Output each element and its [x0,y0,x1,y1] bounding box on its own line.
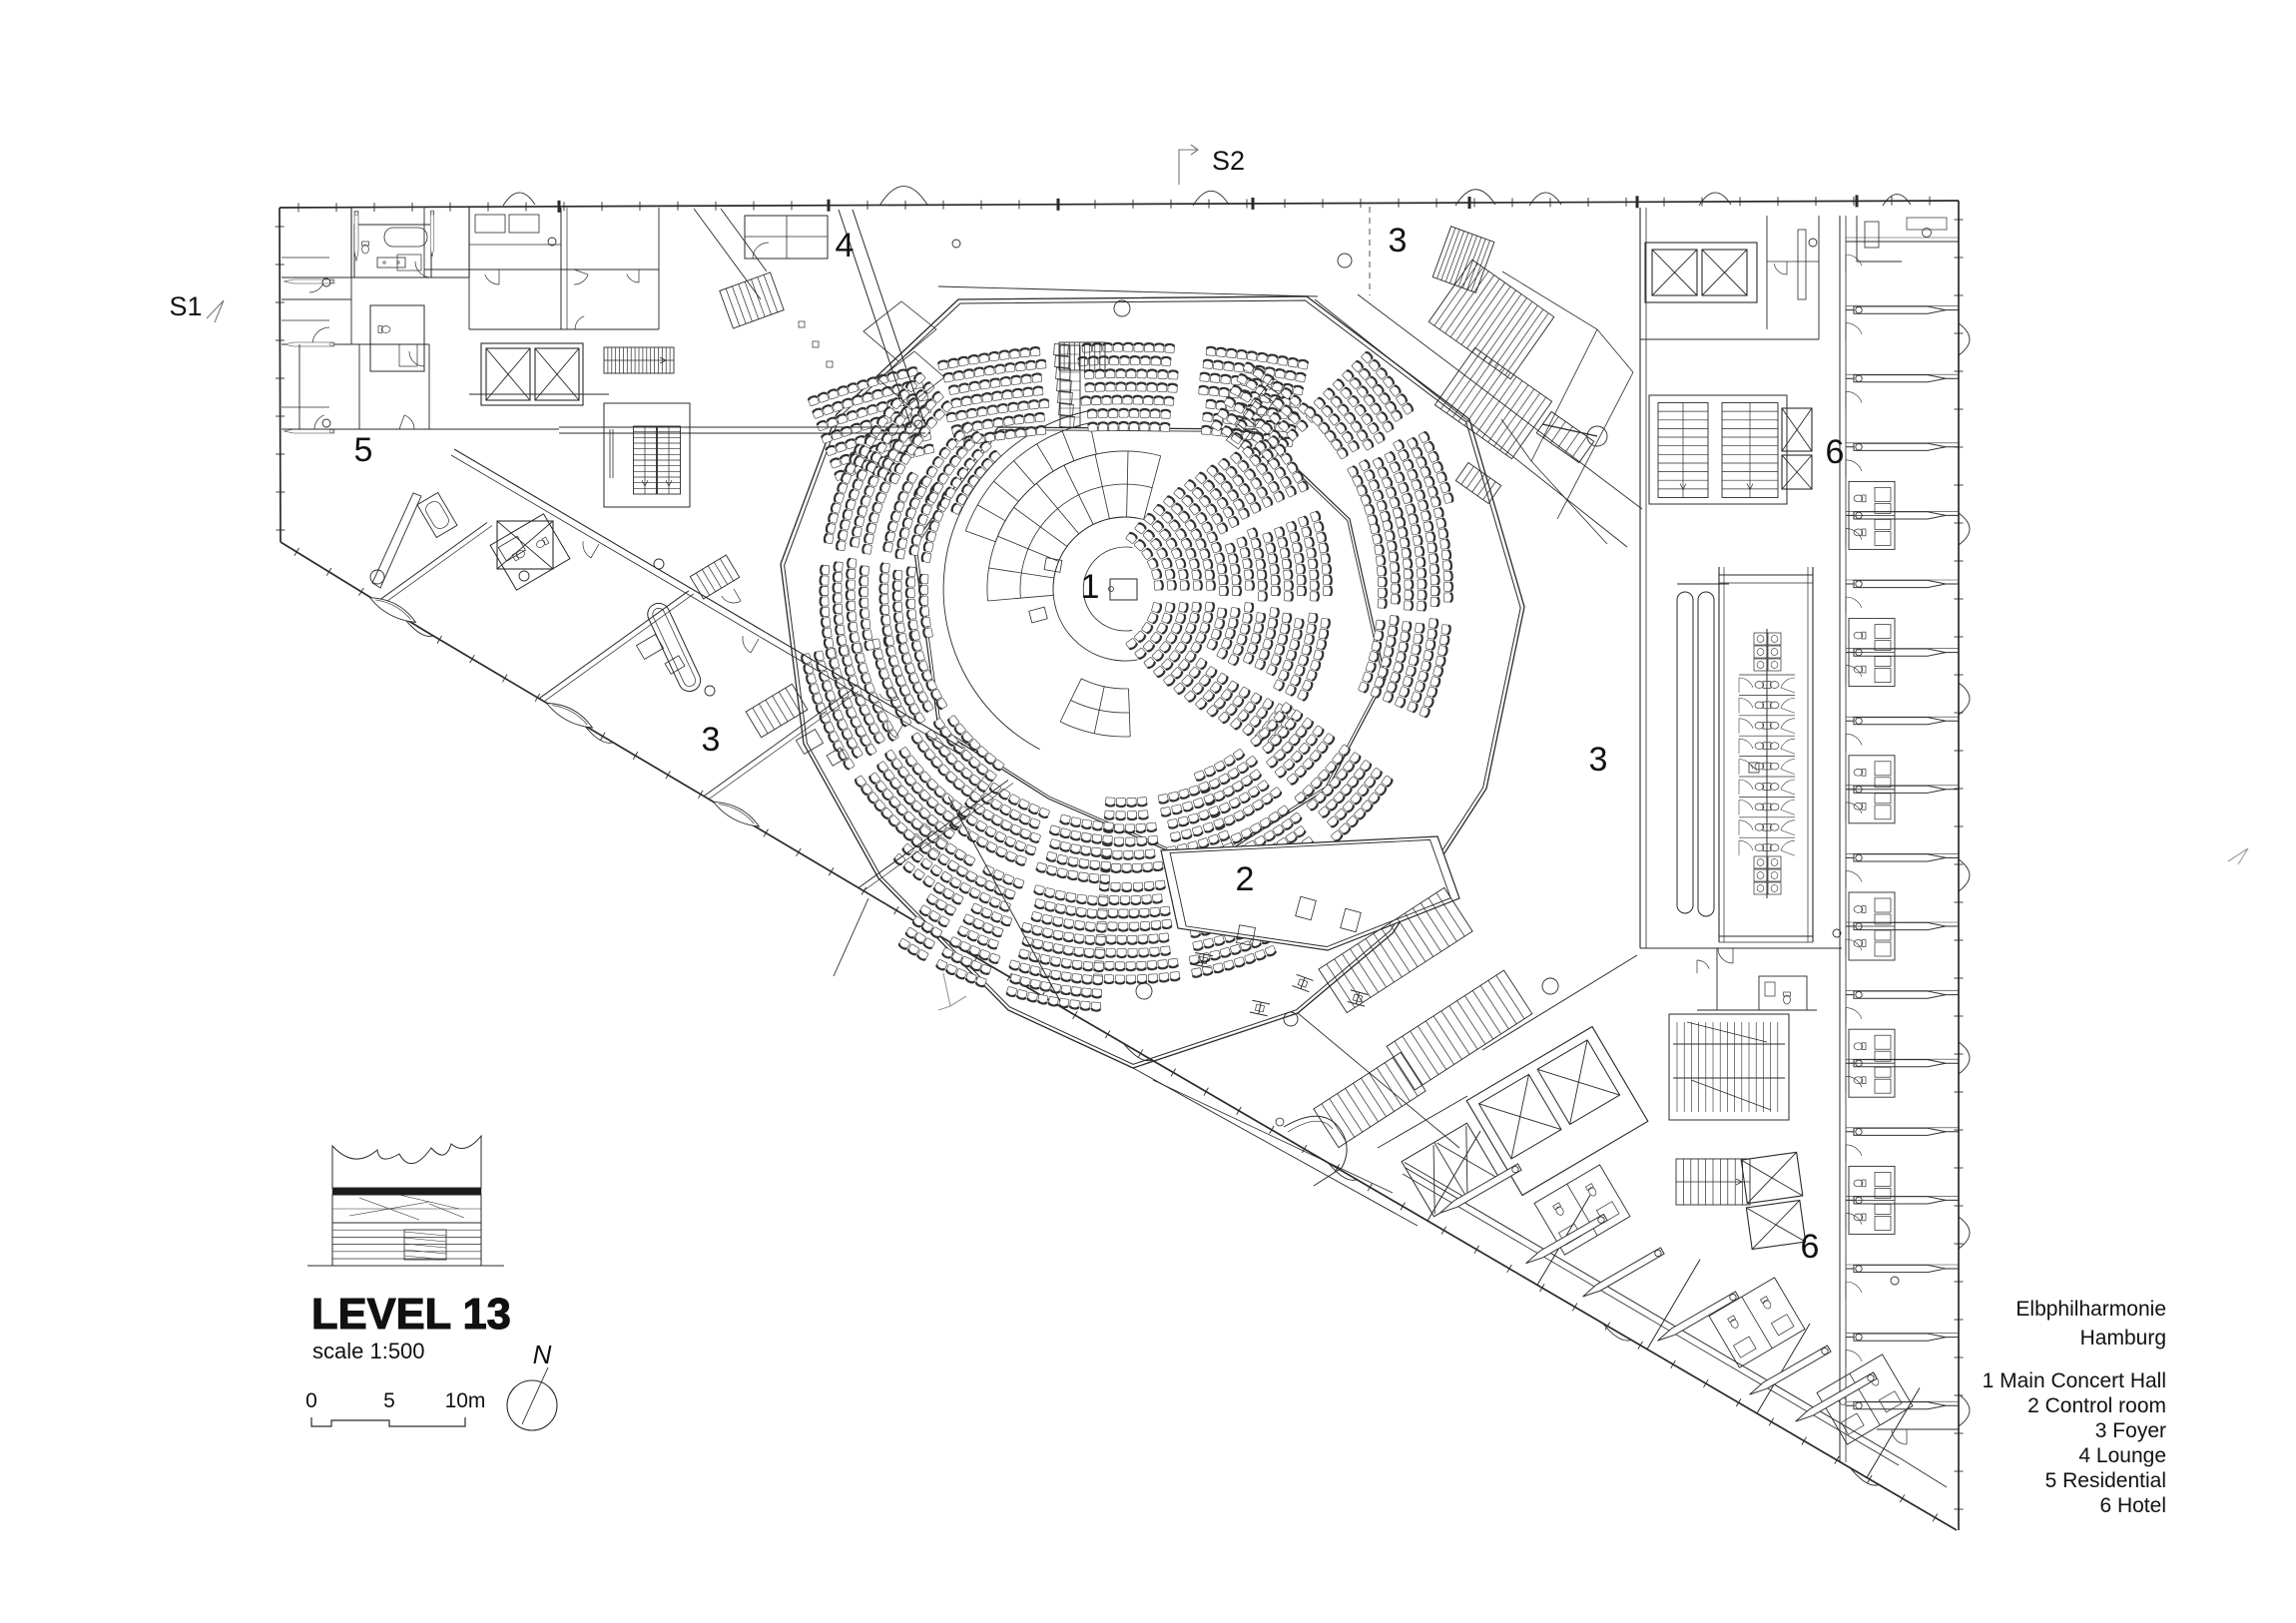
svg-text:6: 6 [1826,433,1845,471]
svg-text:5: 5 [354,431,373,469]
svg-text:10m: 10m [445,1389,486,1412]
svg-text:3 Foyer: 3 Foyer [2095,1419,2166,1442]
svg-text:Hamburg: Hamburg [2080,1327,2166,1350]
svg-text:4: 4 [836,227,855,265]
svg-text:0: 0 [305,1389,317,1412]
svg-text:2: 2 [1236,860,1255,898]
svg-text:N: N [533,1340,552,1369]
svg-text:scale 1:500: scale 1:500 [312,1339,425,1363]
svg-text:Elbphilharmonie: Elbphilharmonie [2015,1298,2166,1321]
svg-text:S2: S2 [1212,146,1245,176]
svg-text:6 Hotel: 6 Hotel [2099,1494,2166,1517]
svg-text:5: 5 [383,1389,395,1412]
svg-text:1: 1 [1081,568,1100,606]
svg-text:1 Main Concert Hall: 1 Main Concert Hall [1983,1369,2166,1392]
svg-text:3: 3 [702,721,721,759]
svg-text:3: 3 [1389,222,1408,260]
svg-text:6: 6 [1801,1228,1820,1266]
svg-text:2 Control room: 2 Control room [2027,1394,2166,1417]
svg-text:LEVEL 13: LEVEL 13 [311,1291,511,1339]
svg-text:4 Lounge: 4 Lounge [2078,1444,2166,1467]
svg-text:3: 3 [1589,741,1608,779]
svg-text:5 Residential: 5 Residential [2045,1469,2166,1492]
svg-text:S1: S1 [169,291,202,321]
